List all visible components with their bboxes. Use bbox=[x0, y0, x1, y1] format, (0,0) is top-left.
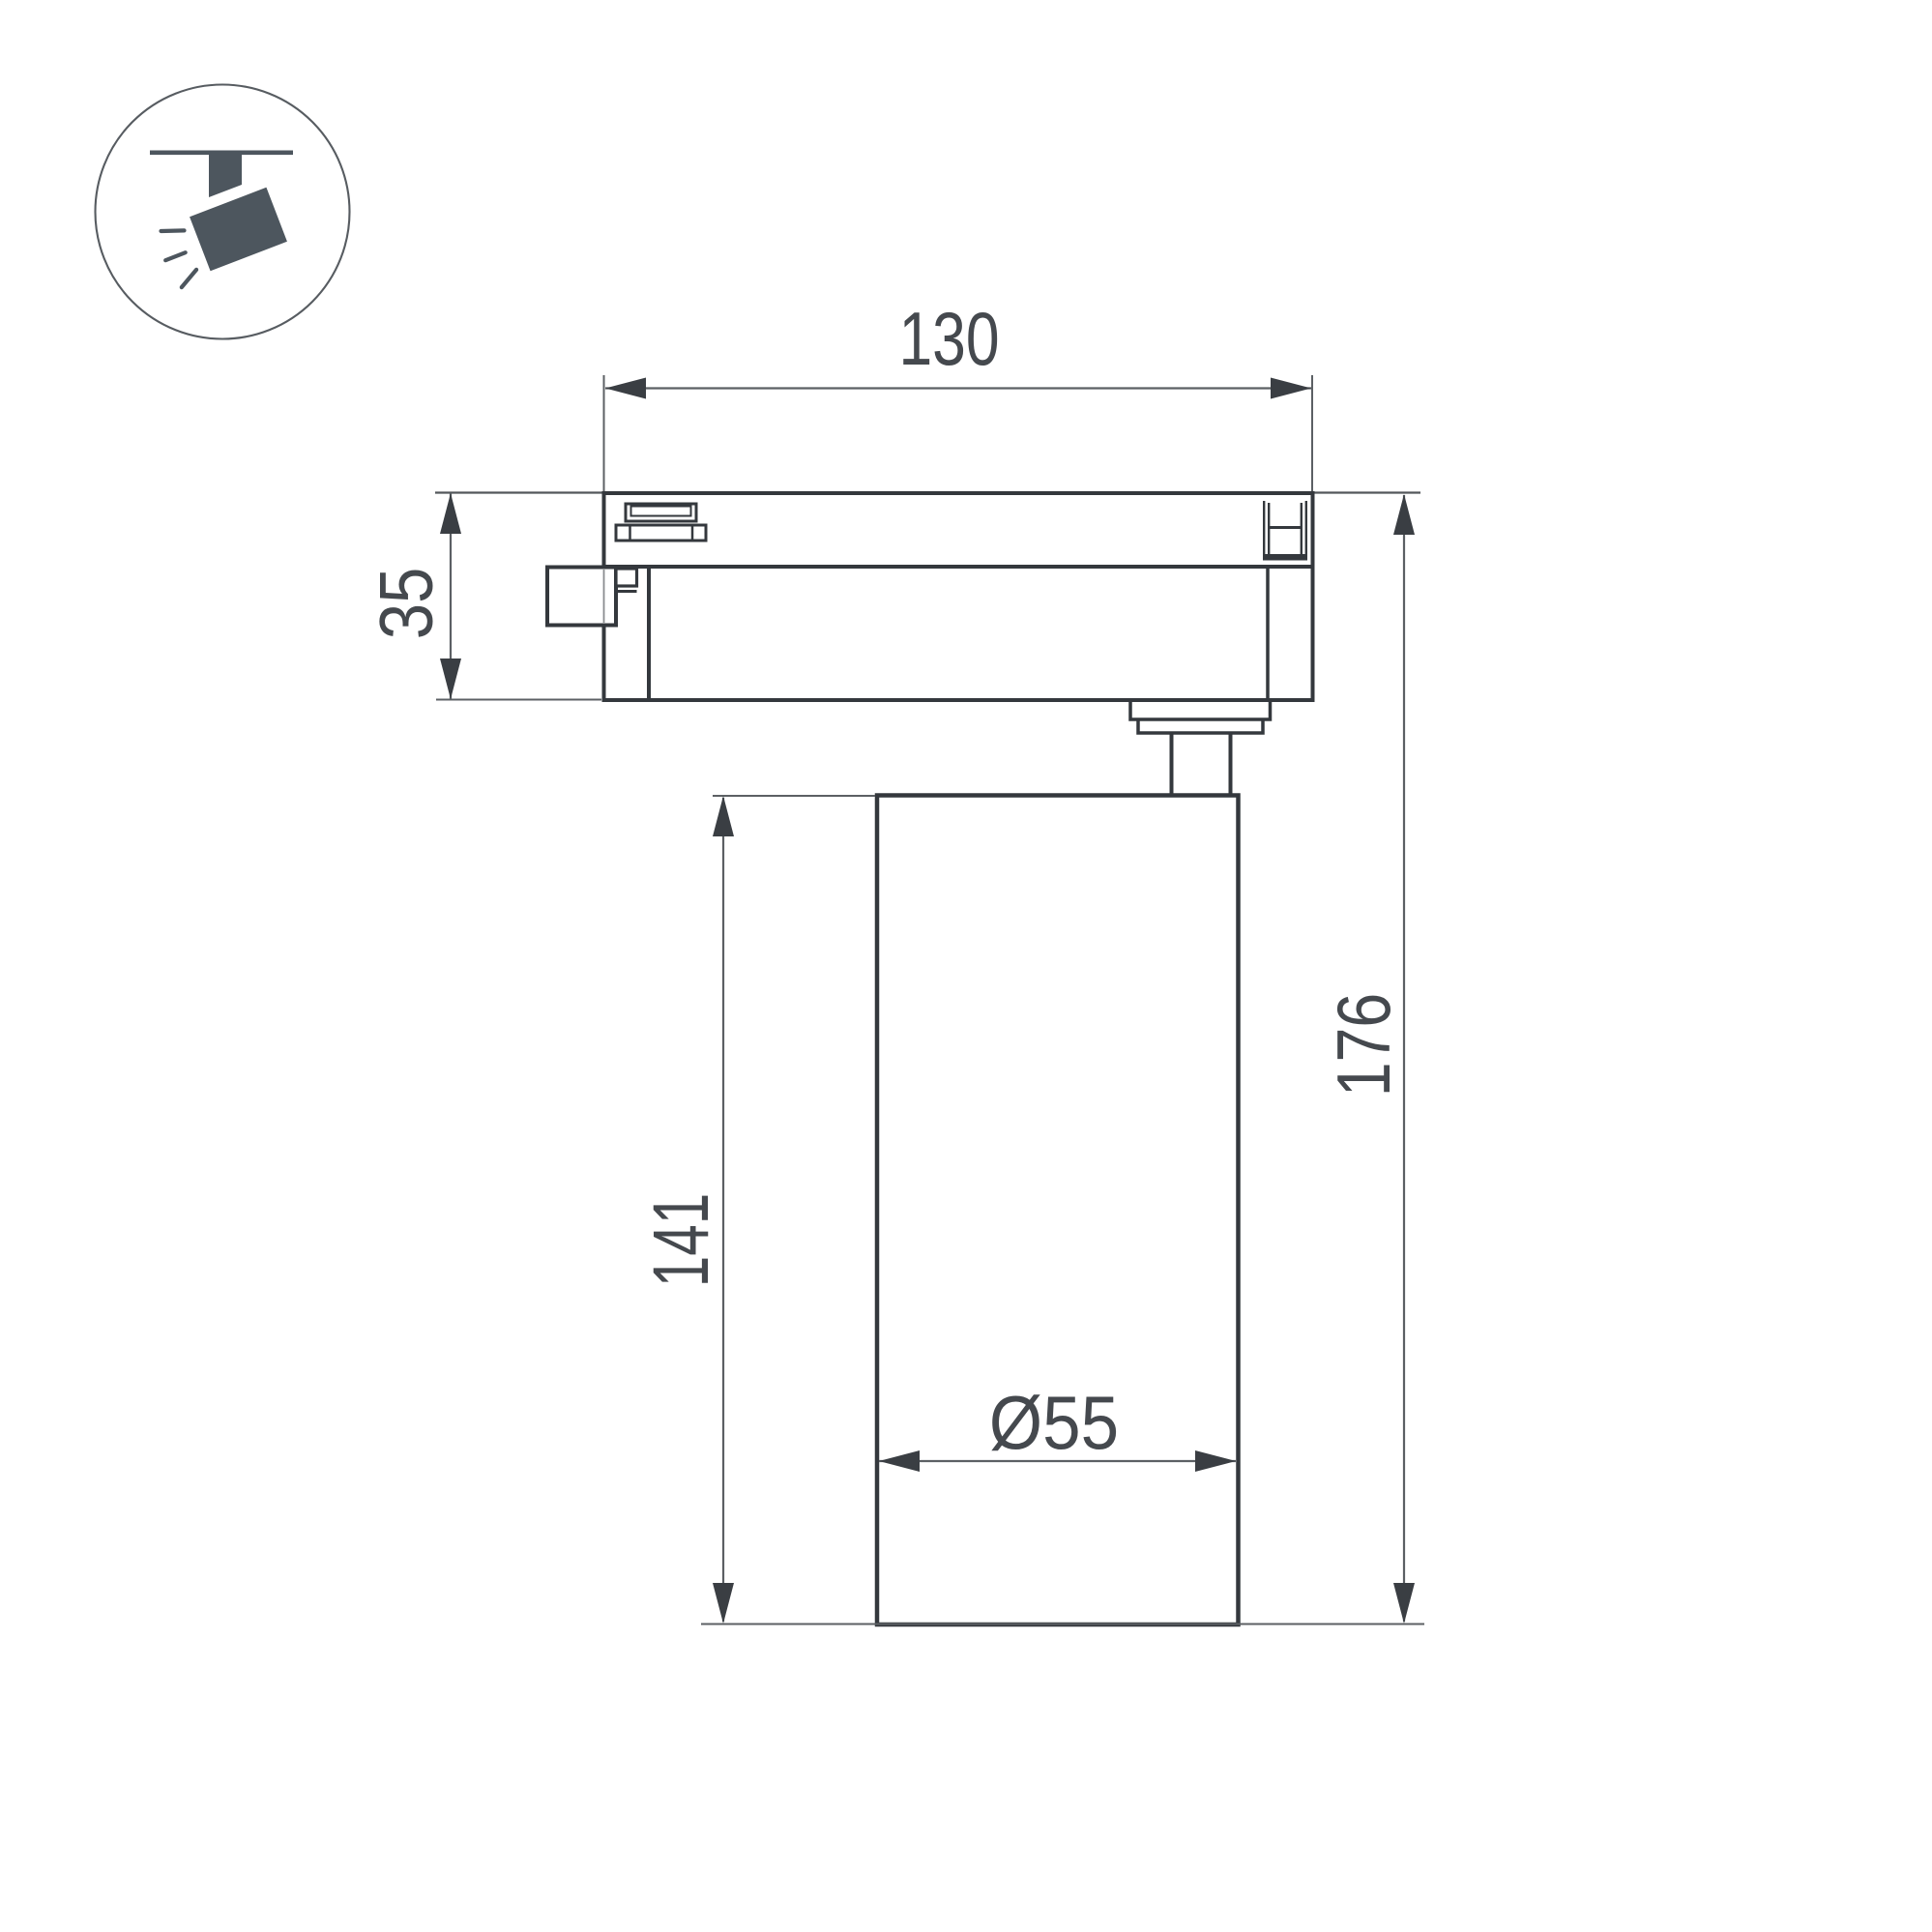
svg-text:176: 176 bbox=[1322, 993, 1406, 1097]
svg-text:141: 141 bbox=[637, 1193, 725, 1288]
svg-text:35: 35 bbox=[365, 568, 449, 640]
svg-text:130: 130 bbox=[898, 296, 999, 380]
svg-text:Ø55: Ø55 bbox=[989, 1380, 1119, 1465]
